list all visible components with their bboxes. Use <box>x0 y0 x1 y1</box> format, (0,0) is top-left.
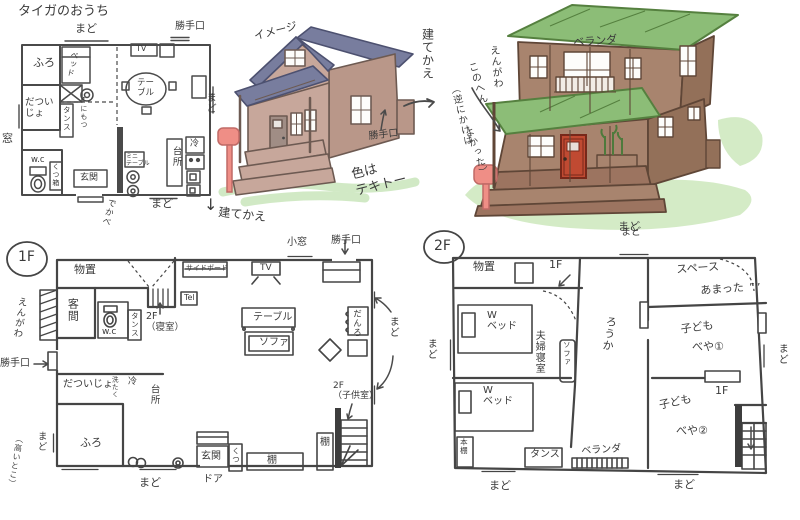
entrance-label: 玄関 <box>80 173 98 183</box>
to-1f-label: 1F <box>715 385 728 397</box>
double-bed-label: W ベッド <box>487 310 517 332</box>
fridge-label: 冷 <box>190 139 199 149</box>
window-label: 窓 <box>2 133 13 145</box>
shelf-label: 棚 <box>320 437 330 448</box>
window-label: まど <box>151 198 173 210</box>
shoe-box-label: くつ箱 <box>51 163 59 187</box>
window-label: まど <box>621 227 641 238</box>
kitchen-label: 台所 <box>170 146 181 167</box>
couple-bedroom-label: 夫婦寝室 <box>533 330 544 374</box>
tv-label: TV <box>260 263 272 273</box>
window-label: まど <box>489 480 511 492</box>
window-label: まど <box>75 23 97 35</box>
sweat-marks: ”” <box>749 282 760 294</box>
wc-label: w.c <box>31 156 45 166</box>
entrance-label: 玄関 <box>201 451 221 462</box>
rebuild-arrow-icon <box>404 99 434 107</box>
backdoor-label: 勝手口 <box>175 21 205 32</box>
annotation-arrows <box>0 0 800 520</box>
guest-room-label: 客間 <box>66 298 78 322</box>
window-label: まど <box>425 338 436 360</box>
sideboard-label: サイドボード <box>186 265 228 273</box>
backdoor-label: 勝手口 <box>331 235 361 246</box>
storage-label: 物置 <box>74 264 96 276</box>
table-label: テー ブル <box>137 79 154 98</box>
shoes-label: くつ <box>231 447 239 464</box>
window-label: まど <box>673 479 695 491</box>
dresser-label: タンス <box>130 312 138 338</box>
kids-room-2-label: べや② <box>676 425 708 437</box>
dresser-label: タンス <box>62 106 70 132</box>
luggage-note: ↑にもつ <box>79 96 87 129</box>
small-window-label: 小窓 <box>287 237 307 248</box>
bath-label: ふろ <box>33 57 55 69</box>
window-label: まど <box>387 316 398 338</box>
shelf-label: 棚 <box>267 455 277 466</box>
window-label: まど <box>139 477 161 489</box>
tv-label: TV <box>136 45 146 54</box>
fridge-label: 冷 <box>128 377 137 387</box>
rebuild-label: 建てかえ <box>420 28 433 80</box>
stairs-note: 2F （寝室） <box>146 312 184 333</box>
changing-room-label: だついじょ <box>63 379 113 390</box>
door-label: ドア <box>203 474 223 485</box>
bath-label: ふろ <box>80 437 102 449</box>
storage-label: 物置 <box>473 261 495 273</box>
window-label: まど <box>204 92 215 114</box>
double-bed-label: W ベッド <box>483 385 513 407</box>
backdoor-label: 勝手口 <box>0 358 30 369</box>
table-label: テーブル <box>253 312 292 323</box>
dresser-label: タンス <box>530 449 560 460</box>
kids-room-1-label: べや① <box>692 341 724 353</box>
hand-drawn-floorplan-sketch: タイガのおうち まど 勝手口 TV まど ふろ ベッド ↑にもつ タンス だつい… <box>0 0 800 520</box>
window-label: まど <box>776 343 787 365</box>
floor-badge-2f: 2F <box>434 239 451 255</box>
mini-table-label: ミニ テーブル <box>126 154 150 167</box>
changing-room-label: だつい じょ <box>25 98 54 119</box>
kitchen-label: 台所 <box>148 384 159 405</box>
sofa-label: ソファ <box>562 341 570 367</box>
tel-label: Tel <box>184 294 195 303</box>
down-arrow-icon: ↓ <box>204 196 217 214</box>
sofa-label: ソファ <box>259 337 289 348</box>
stairs-note: 2F （子供室） <box>333 381 378 401</box>
fireplace-label: だんろ <box>351 309 361 338</box>
wc-label: w.c <box>102 327 116 337</box>
bookshelf-label: 本棚 <box>459 438 467 455</box>
to-1f-label: 1F <box>549 259 562 271</box>
window-label: まど <box>35 431 46 452</box>
floor-badge-1f: 1F <box>18 250 35 266</box>
laundry-label: 洗たく <box>110 376 117 399</box>
old-plan-title: タイガのおうち <box>18 5 109 20</box>
